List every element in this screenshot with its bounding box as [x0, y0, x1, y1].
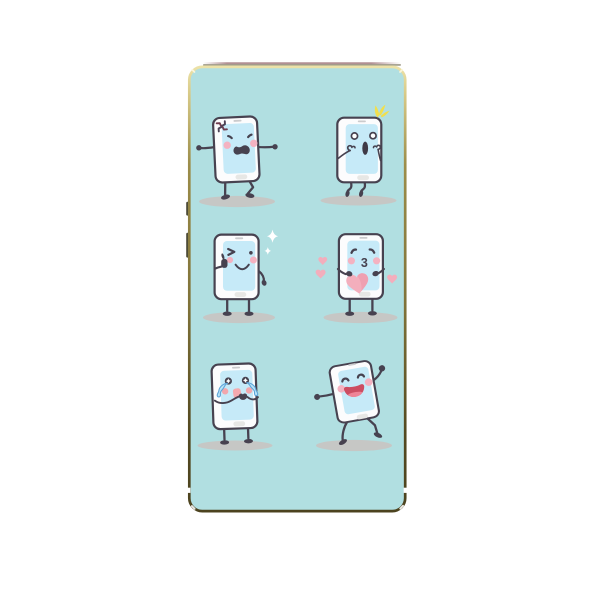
- svg-text:3: 3: [361, 256, 368, 270]
